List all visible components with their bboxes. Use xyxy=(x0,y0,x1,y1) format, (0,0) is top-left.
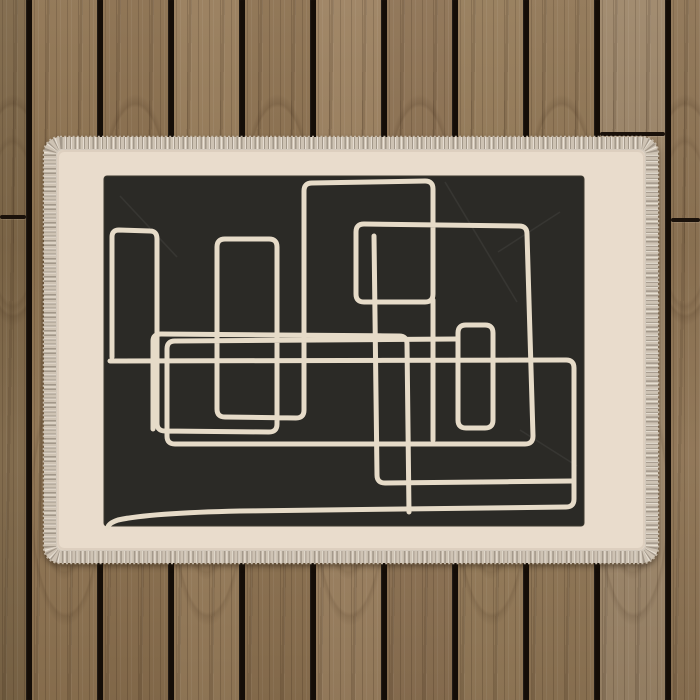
rug xyxy=(0,0,700,700)
art-canvas xyxy=(104,176,584,526)
